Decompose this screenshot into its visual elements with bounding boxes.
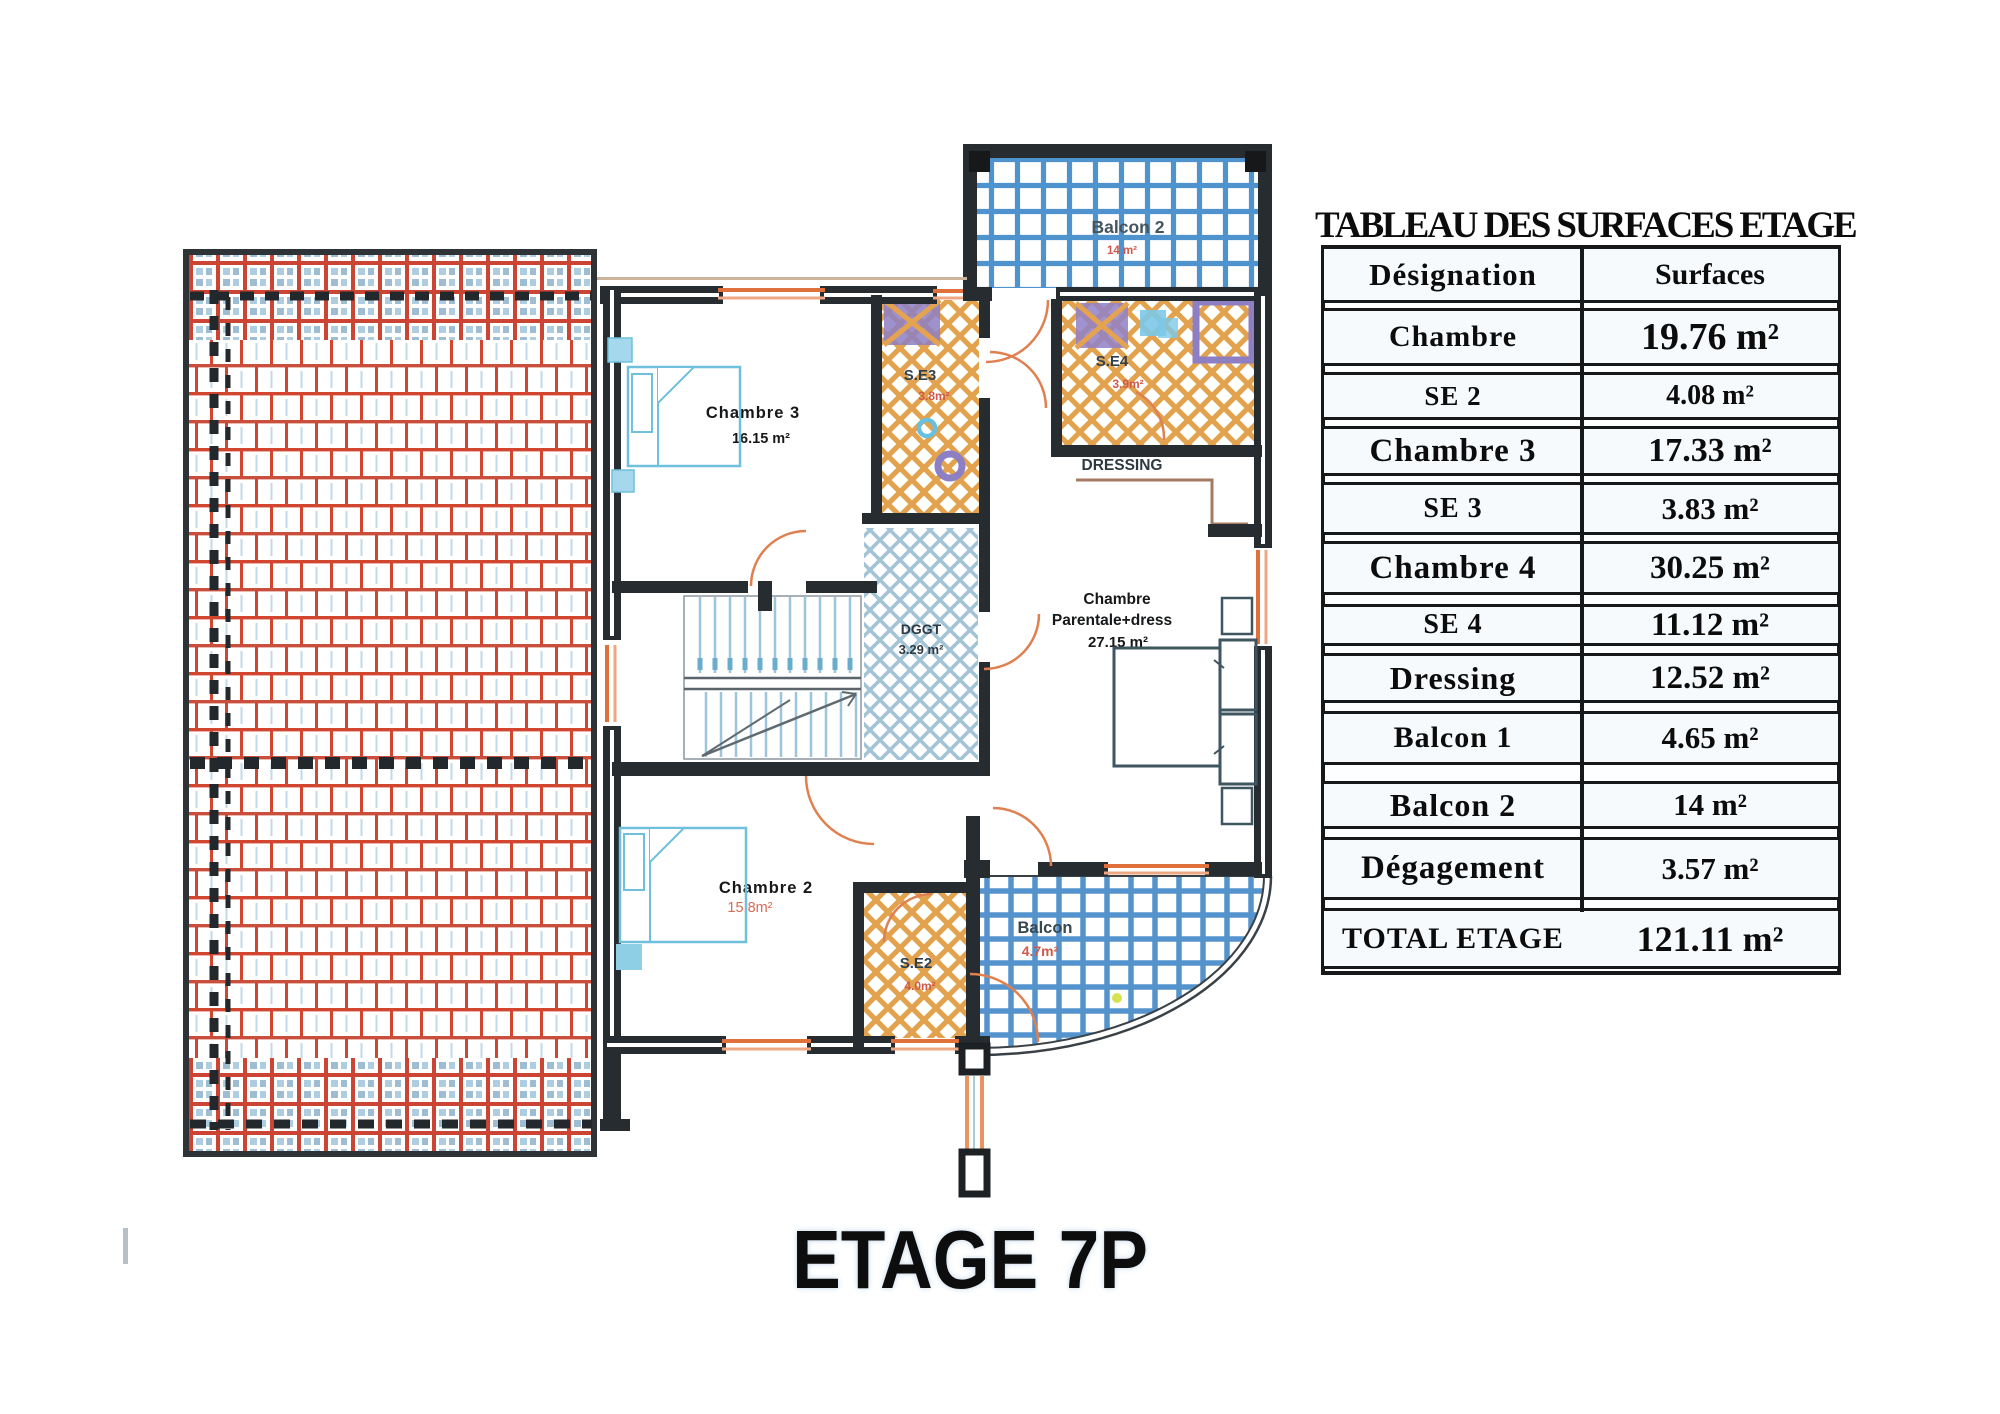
svg-text:DGGT: DGGT xyxy=(901,621,942,637)
svg-text:DRESSING: DRESSING xyxy=(1082,457,1163,474)
svg-text:3.29 m²: 3.29 m² xyxy=(899,642,944,657)
svg-text:Chambre: Chambre xyxy=(1083,591,1151,608)
svg-text:3.8m²: 3.8m² xyxy=(918,389,949,403)
svg-text:Chambre 3: Chambre 3 xyxy=(706,404,800,422)
svg-text:Balcon 2: Balcon 2 xyxy=(1092,217,1165,237)
svg-text:S.E3: S.E3 xyxy=(904,367,937,384)
svg-text:3.9m²: 3.9m² xyxy=(1112,377,1143,391)
svg-text:Balcon: Balcon xyxy=(1017,919,1072,937)
svg-text:Parentale+dress: Parentale+dress xyxy=(1052,612,1172,629)
svg-text:S.E2: S.E2 xyxy=(900,955,933,972)
svg-text:4.7m²: 4.7m² xyxy=(1022,943,1059,959)
svg-text:4.0m²: 4.0m² xyxy=(904,979,935,993)
svg-text:S.E4: S.E4 xyxy=(1096,353,1129,370)
svg-text:14 m²: 14 m² xyxy=(1107,245,1137,257)
svg-text:15.8m²: 15.8m² xyxy=(727,900,772,916)
svg-text:Chambre 2: Chambre 2 xyxy=(719,879,813,897)
